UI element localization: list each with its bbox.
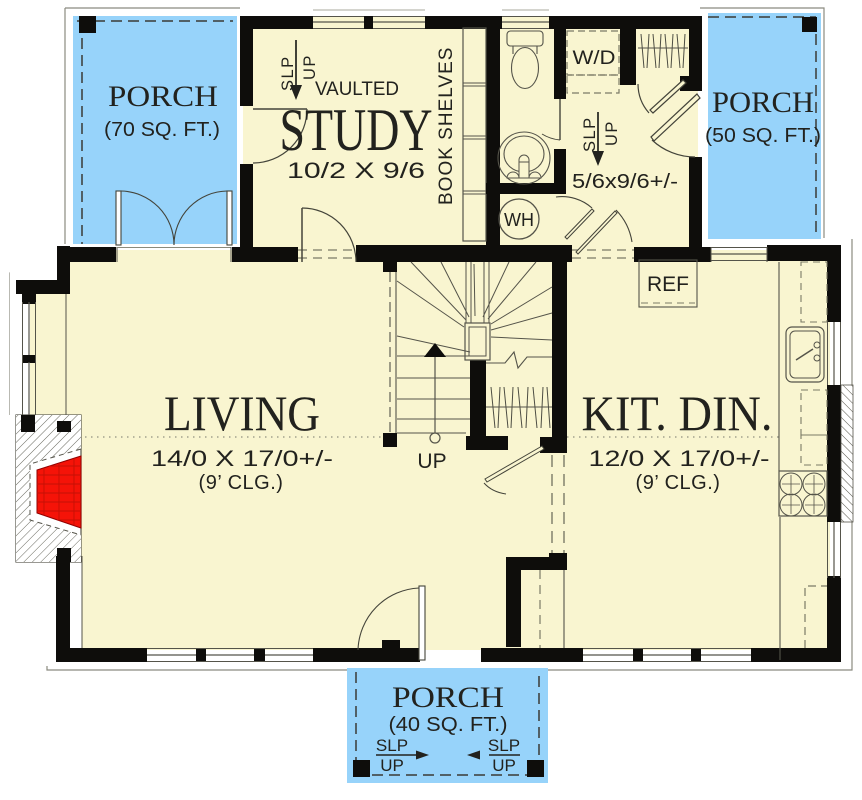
svg-text:(9’ CLG.): (9’ CLG.)	[636, 472, 721, 494]
svg-text:LIVING: LIVING	[164, 385, 320, 441]
svg-text:BOOK SHELVES: BOOK SHELVES	[436, 47, 457, 205]
svg-text:10/2 X 9/6: 10/2 X 9/6	[287, 158, 425, 183]
svg-text:5/6x9/6+/-: 5/6x9/6+/-	[572, 171, 678, 193]
svg-text:KIT. DIN.: KIT. DIN.	[582, 385, 773, 441]
svg-text:SLP: SLP	[376, 736, 408, 755]
svg-text:UP: UP	[492, 756, 516, 775]
svg-text:12/0 X 17/0+/-: 12/0 X 17/0+/-	[589, 446, 770, 471]
svg-text:UP: UP	[603, 120, 621, 146]
svg-text:WH: WH	[504, 210, 534, 230]
svg-text:PORCH: PORCH	[712, 86, 814, 119]
svg-text:W/D: W/D	[573, 48, 616, 69]
svg-text:(9’ CLG.): (9’ CLG.)	[199, 472, 284, 494]
svg-text:(40 SQ. FT.): (40 SQ. FT.)	[389, 714, 508, 736]
svg-text:(70 SQ. FT.): (70 SQ. FT.)	[104, 119, 220, 141]
svg-text:STUDY: STUDY	[280, 97, 433, 163]
svg-text:REF: REF	[647, 273, 689, 296]
svg-text:SLP: SLP	[581, 116, 599, 152]
svg-text:PORCH: PORCH	[392, 681, 504, 714]
svg-text:UP: UP	[417, 450, 446, 473]
svg-text:UP: UP	[301, 54, 319, 80]
svg-text:14/0 X 17/0+/-: 14/0 X 17/0+/-	[151, 446, 333, 471]
svg-text:SLP: SLP	[488, 736, 520, 755]
svg-text:UP: UP	[380, 756, 404, 775]
svg-text:PORCH: PORCH	[108, 80, 218, 113]
svg-text:(50 SQ. FT.): (50 SQ. FT.)	[705, 125, 821, 147]
svg-text:SLP: SLP	[279, 55, 297, 91]
